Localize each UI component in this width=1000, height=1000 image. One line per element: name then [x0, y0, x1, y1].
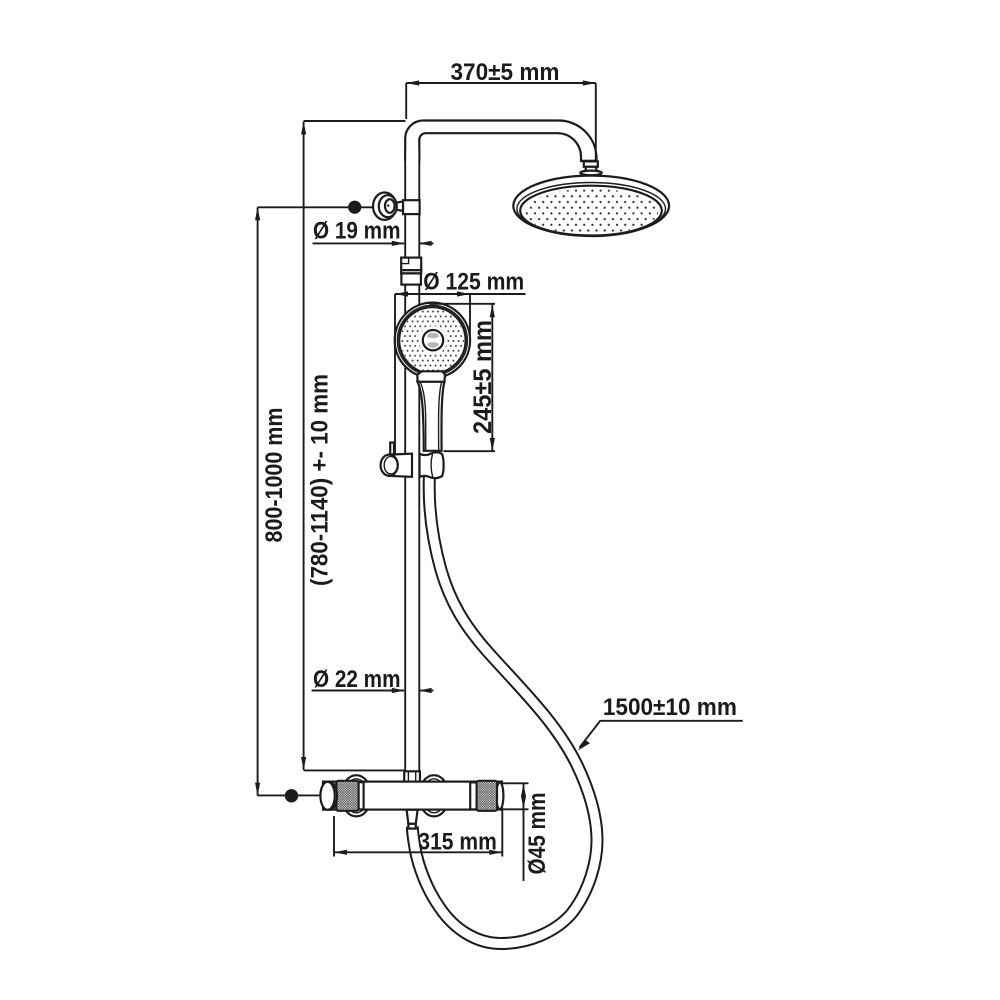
svg-text:245±5 mm: 245±5 mm [469, 320, 497, 434]
svg-text:(780-1140) +- 10 mm: (780-1140) +- 10 mm [307, 374, 334, 586]
svg-text:Ø 125 mm: Ø 125 mm [423, 269, 524, 296]
svg-text:Ø 22 mm: Ø 22 mm [313, 666, 401, 693]
svg-text:1500±10 mm: 1500±10 mm [603, 694, 737, 721]
svg-text:370±5 mm: 370±5 mm [451, 59, 560, 86]
svg-text:800-1000 mm: 800-1000 mm [261, 408, 288, 543]
svg-text:Ø 19 mm: Ø 19 mm [313, 218, 401, 245]
svg-text:Ø45 mm: Ø45 mm [524, 793, 551, 875]
